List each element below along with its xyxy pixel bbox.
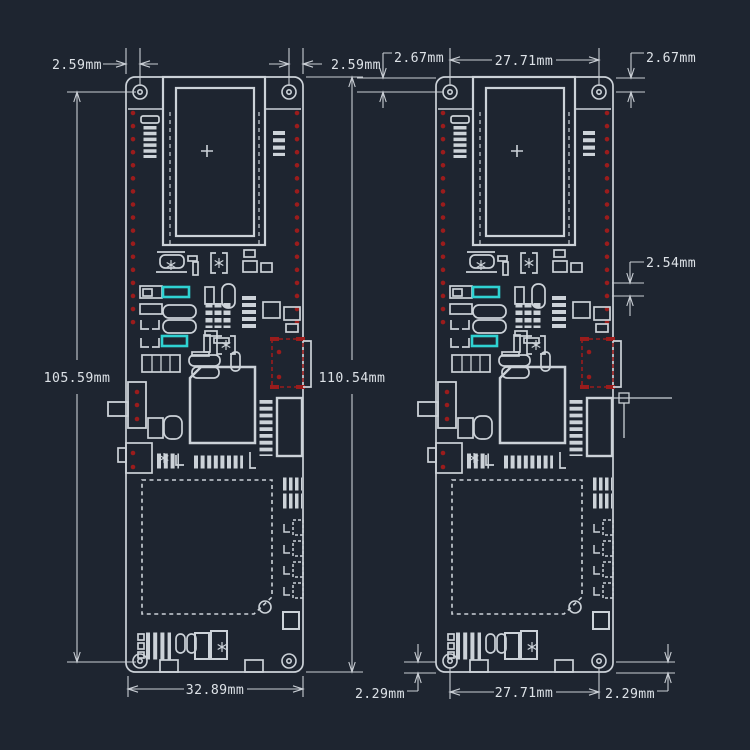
dim-hole-offset-right: 2.59mm	[331, 58, 381, 73]
dim-hole-offset-bottom-left: 2.29mm	[355, 687, 405, 702]
pcb-board-right-view	[418, 77, 621, 672]
dim-board-height: 110.54mm	[319, 371, 386, 386]
right-view-dimensions	[357, 48, 675, 699]
cad-drawing-canvas: 2.59mm 2.59mm 105.59mm 110.54mm 32.89mm	[0, 0, 750, 750]
dim-hole-offset-top-left: 2.67mm	[394, 51, 444, 66]
dim-hole-offset-bottom-right: 2.29mm	[605, 687, 655, 702]
dim-hole-span-width-bottom: 27.71mm	[495, 686, 553, 701]
right-view-dimension-labels: 2.67mm 27.71mm 2.67mm 2.54mm 2.29mm 27.7…	[355, 51, 696, 702]
pcb-dimension-drawing: 2.59mm 2.59mm 105.59mm 110.54mm 32.89mm	[0, 0, 750, 750]
dim-hole-span-height: 105.59mm	[44, 371, 111, 386]
pcb-board-left-view	[108, 77, 311, 672]
dim-header-pin-pitch: 2.54mm	[646, 256, 696, 271]
dim-hole-span-width-top: 27.71mm	[495, 54, 553, 69]
dim-hole-offset-top-right: 2.67mm	[646, 51, 696, 66]
dim-board-width: 32.89mm	[186, 683, 244, 698]
origin-crosshair-icon	[590, 393, 672, 438]
dim-hole-offset-left: 2.59mm	[52, 58, 102, 73]
